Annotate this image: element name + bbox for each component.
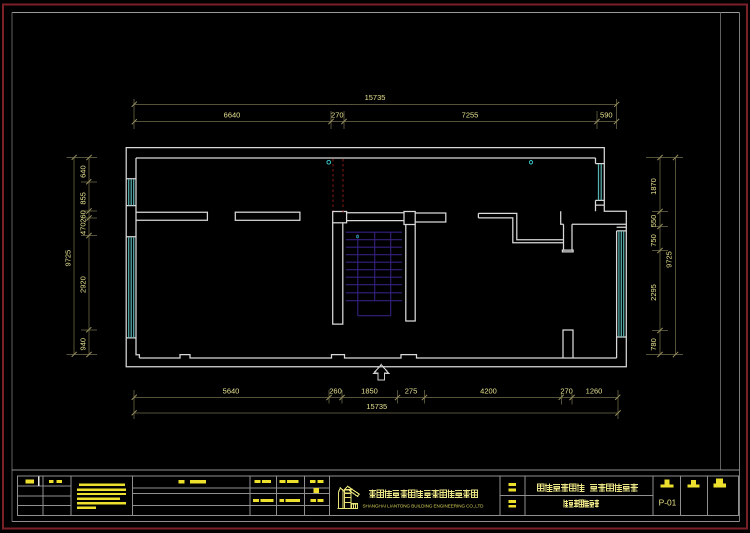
svg-text:270: 270 xyxy=(331,110,344,119)
svg-text:1850: 1850 xyxy=(361,387,378,396)
svg-text:590: 590 xyxy=(600,110,613,119)
svg-text:7255: 7255 xyxy=(462,110,479,119)
svg-text:2295: 2295 xyxy=(649,284,658,301)
svg-text:2920: 2920 xyxy=(79,276,88,293)
svg-text:6640: 6640 xyxy=(224,110,241,119)
svg-text:P-01: P-01 xyxy=(659,498,677,508)
svg-text:750: 750 xyxy=(649,234,658,247)
svg-text:640: 640 xyxy=(79,165,88,178)
svg-text:1260: 1260 xyxy=(586,387,603,396)
svg-text:9725: 9725 xyxy=(665,251,674,268)
svg-text:780: 780 xyxy=(649,338,658,351)
svg-text:15735: 15735 xyxy=(365,93,386,102)
svg-text:550: 550 xyxy=(649,215,658,228)
svg-text:15735: 15735 xyxy=(366,402,387,411)
svg-text:SHANGHAI LIANTONG BUILDING ENG: SHANGHAI LIANTONG BUILDING ENGINEERING C… xyxy=(363,504,485,509)
svg-text:260: 260 xyxy=(79,210,88,223)
svg-text:5640: 5640 xyxy=(223,387,240,396)
svg-text:4200: 4200 xyxy=(480,387,497,396)
svg-text:855: 855 xyxy=(79,192,88,205)
svg-text:470: 470 xyxy=(79,222,88,235)
svg-text:940: 940 xyxy=(79,338,88,351)
svg-text:275: 275 xyxy=(405,387,418,396)
svg-text:260: 260 xyxy=(329,387,342,396)
svg-text:270: 270 xyxy=(560,387,573,396)
svg-text:1870: 1870 xyxy=(649,178,658,195)
svg-text:9725: 9725 xyxy=(63,250,72,267)
